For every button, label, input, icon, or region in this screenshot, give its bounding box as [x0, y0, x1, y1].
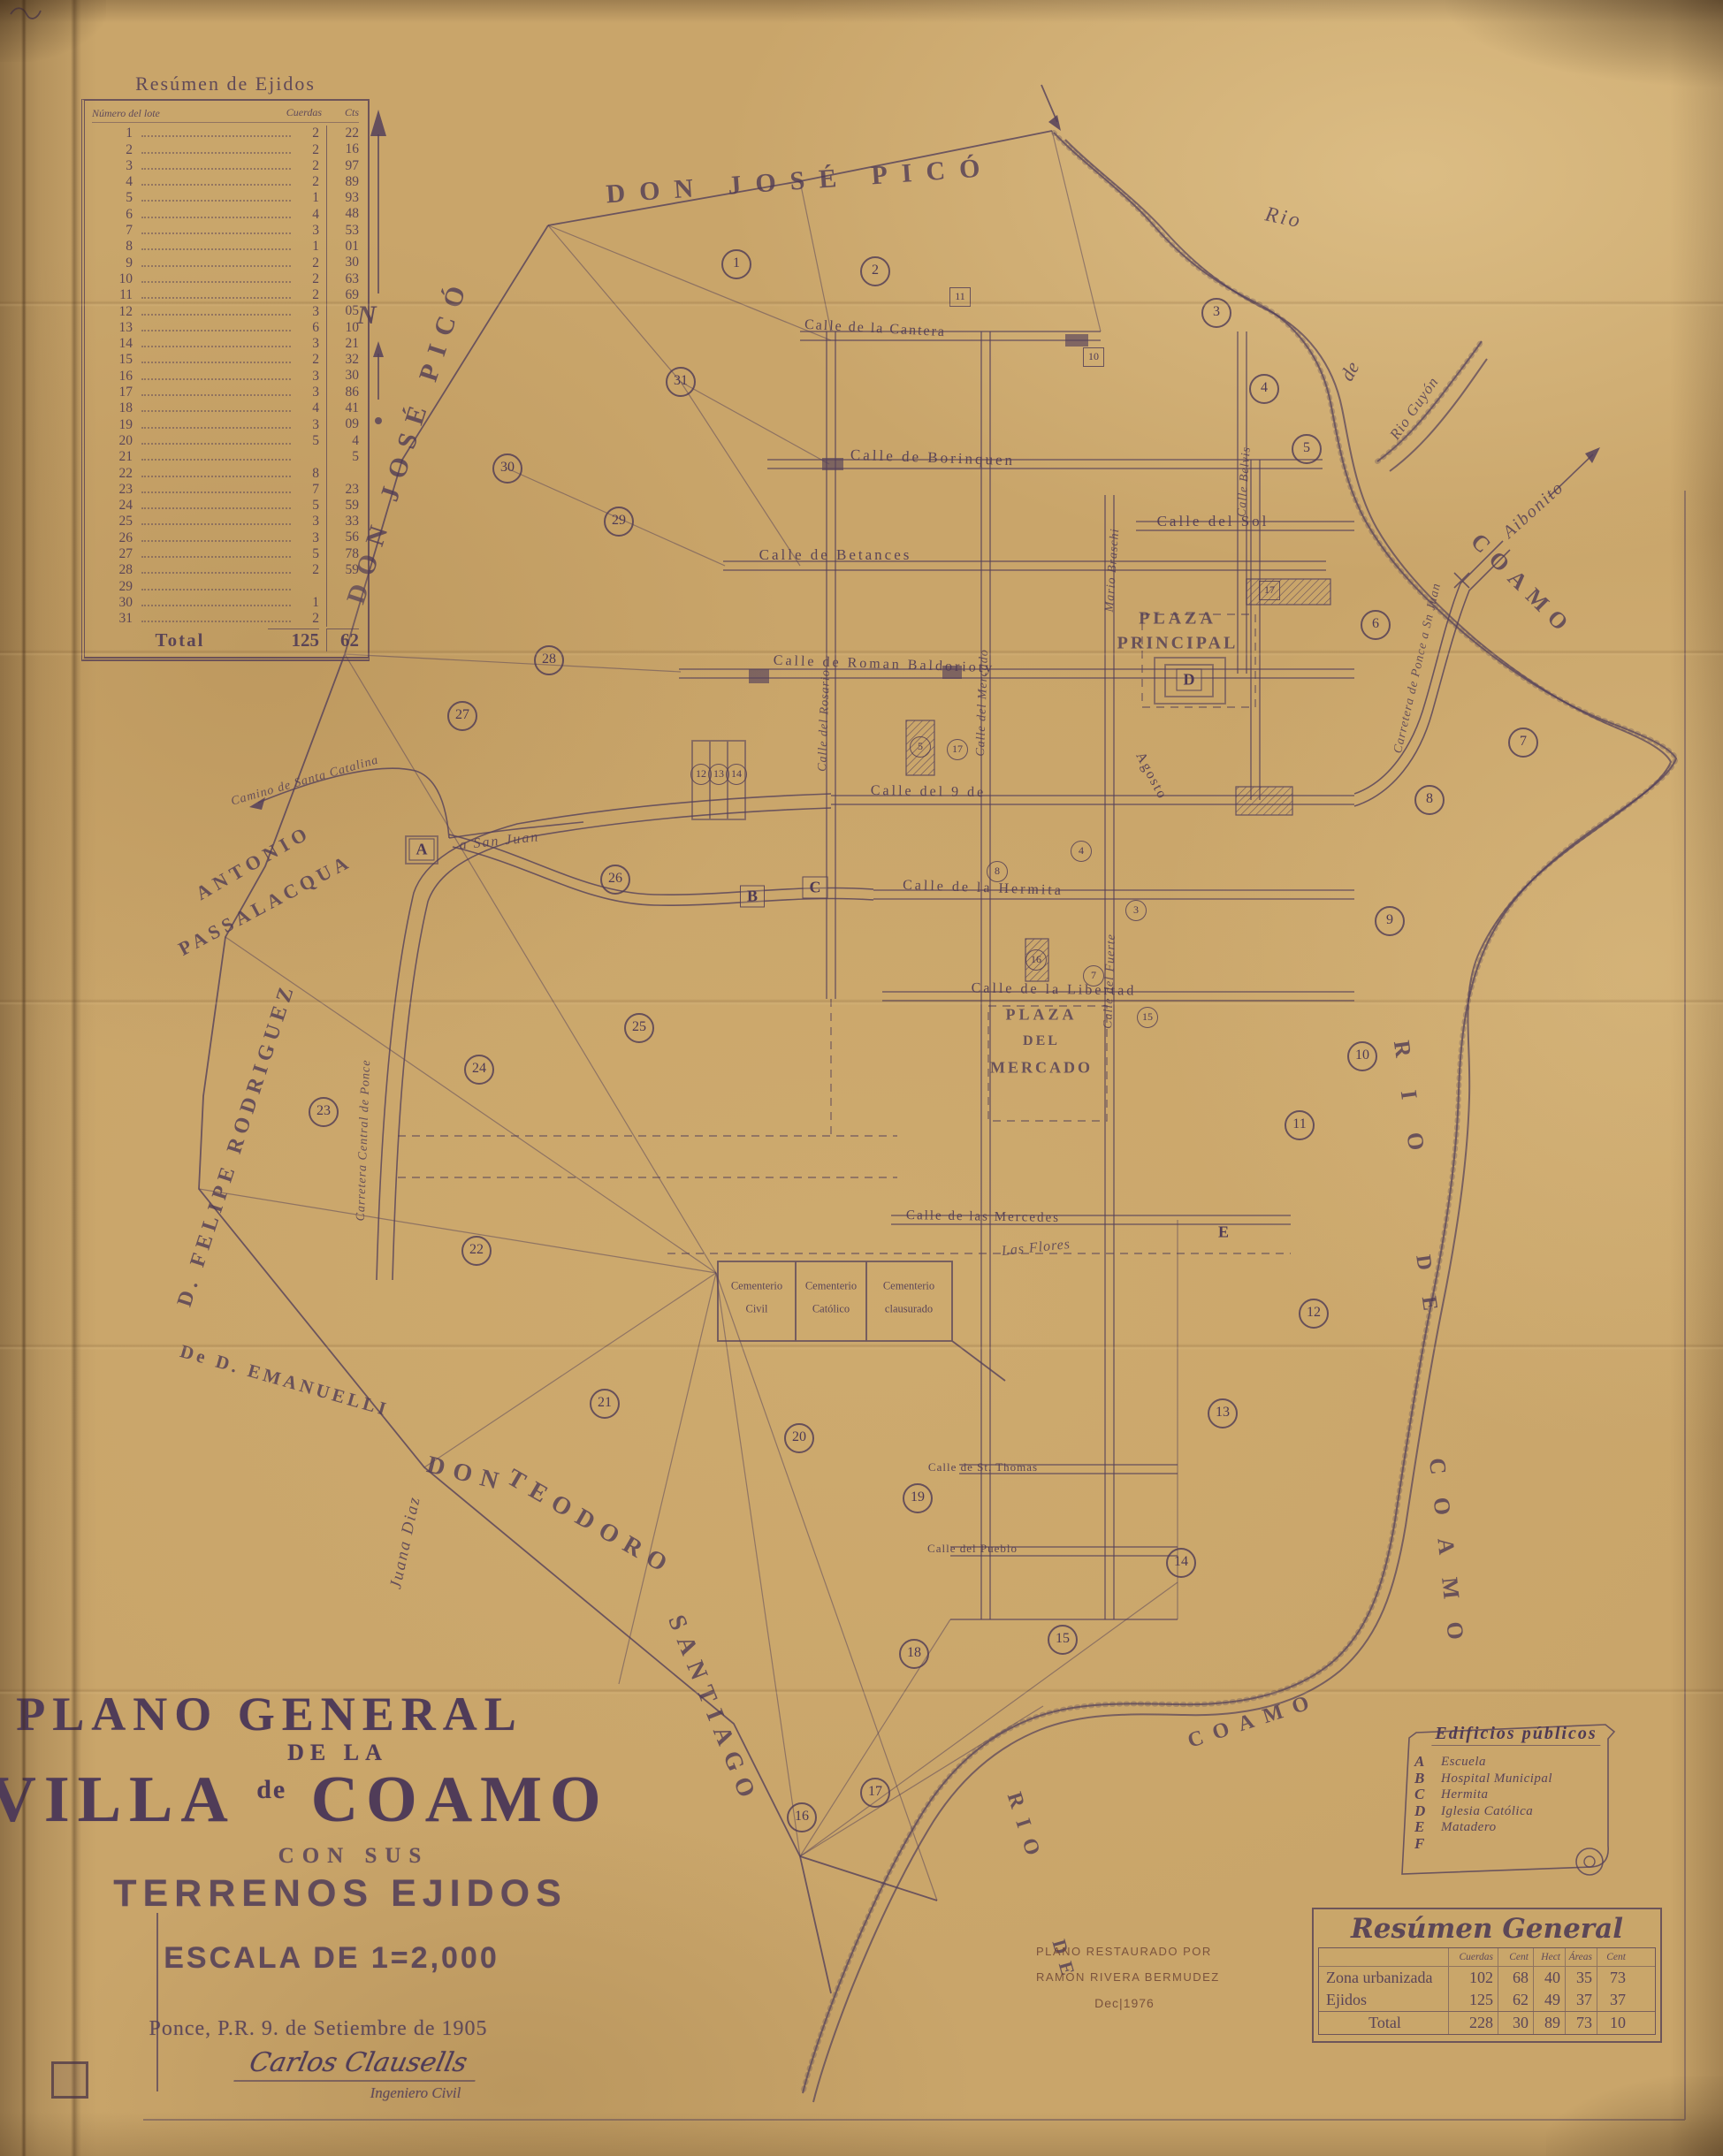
- cts-value: 23: [326, 482, 359, 498]
- cts-value: [326, 465, 359, 481]
- cuerdas-value: 3: [296, 514, 319, 529]
- dotted-leader: [141, 621, 291, 622]
- lot-number-6: 6: [1361, 610, 1391, 640]
- lot-number-7: 7: [1508, 728, 1538, 758]
- legend-name: Escuela: [1441, 1754, 1486, 1771]
- resumen-rows: Zona urbanizada10268403573Ejidos12562493…: [1319, 1967, 1655, 2034]
- fold-crease: [0, 301, 1723, 307]
- dotted-leader: [141, 491, 291, 493]
- dotted-leader: [141, 476, 291, 477]
- ejidos-header-cts: Cts: [322, 106, 359, 119]
- resumen-header-cell: Cent: [1597, 1948, 1630, 1966]
- map-label-calle-betances: Calle de Betances: [759, 546, 912, 564]
- lot-number: 24: [92, 498, 134, 514]
- cts-value: 16: [326, 141, 359, 157]
- cuerdas-value: 2: [296, 142, 319, 158]
- resumen-header: CuerdasCentHectÁreasCent: [1319, 1948, 1655, 1967]
- restoration-line3: Dec|1976: [1036, 1996, 1213, 2010]
- lot-number: 29: [92, 579, 134, 595]
- dotted-leader: [141, 540, 291, 542]
- lot-number-26: 26: [600, 865, 630, 895]
- map-label-plaza-principal-1: PLAZA: [1139, 609, 1216, 629]
- lot-number: 16: [92, 369, 134, 385]
- lot-number: 3: [92, 158, 134, 174]
- dotted-leader: [141, 330, 291, 331]
- ejidos-row: 26356: [92, 529, 359, 545]
- resumen-value: 30: [1498, 2012, 1533, 2034]
- dotted-leader: [141, 362, 291, 363]
- lot-number: 5: [92, 190, 134, 206]
- lot-number-1: 1: [721, 249, 751, 279]
- legend-letter: A: [1414, 1754, 1441, 1771]
- lot-number-18: 18: [899, 1639, 929, 1669]
- lot-number-8: 8: [1414, 785, 1445, 815]
- dotted-leader: [141, 507, 291, 509]
- lot-number-19: 19: [903, 1483, 933, 1513]
- cuerdas-value: 2: [296, 562, 319, 578]
- cts-value: [326, 578, 359, 594]
- lot-number: 10: [92, 271, 134, 287]
- legend-title: Edificios públicos: [1431, 1724, 1600, 1746]
- ejidos-total-label: Total: [92, 629, 268, 651]
- cuerdas-value: 5: [296, 433, 319, 449]
- cuerdas-value: 3: [296, 369, 319, 385]
- legend-item: BHospital Municipal: [1414, 1771, 1552, 1787]
- resumen-row-label: Zona urbanizada: [1319, 1969, 1448, 1987]
- resumen-row-label: Ejidos: [1319, 1991, 1448, 2009]
- lot-number: 1: [92, 126, 134, 141]
- lot-number-17: 17: [947, 739, 968, 760]
- dotted-leader: [141, 232, 291, 234]
- ejidos-row: 5193: [92, 190, 359, 206]
- cuerdas-value: 1: [296, 190, 319, 206]
- resumen-header-spacer: [1319, 1948, 1448, 1966]
- dotted-leader: [141, 297, 291, 299]
- ejidos-row: 17386: [92, 385, 359, 400]
- dotted-leader: [141, 443, 291, 445]
- resumen-value: 49: [1533, 1989, 1565, 2011]
- paper-stain: [1440, 0, 1723, 88]
- title-block: PLANO GENERAL DE LA VILLA de COAMO CON S…: [62, 1671, 610, 2130]
- lot-number-29: 29: [604, 507, 634, 537]
- lot-number-5: 5: [1292, 434, 1322, 464]
- north-arrow: [370, 110, 386, 424]
- ejidos-row: 9230: [92, 255, 359, 270]
- corner-mark: [51, 2061, 88, 2099]
- legend-item: AEscuela: [1414, 1754, 1552, 1771]
- resumen-value: 73: [1597, 1967, 1630, 1989]
- cts-value: 89: [326, 174, 359, 190]
- dotted-leader: [141, 394, 291, 396]
- lot-number-4: 4: [1071, 841, 1092, 862]
- lot-number-5: 5: [910, 736, 931, 758]
- cts-value: 59: [326, 498, 359, 514]
- map-label-cementerio-catolico-2: Católico: [812, 1303, 850, 1316]
- map-title-line5: TERRENOS EJIDOS: [113, 1872, 568, 1916]
- resumen-value: 37: [1597, 1989, 1630, 2011]
- lot-number-24: 24: [464, 1055, 494, 1085]
- resumen-value: 62: [1498, 1989, 1533, 2011]
- ejidos-row: 2054: [92, 433, 359, 449]
- lot-number: 20: [92, 433, 134, 449]
- cts-value: 4: [326, 433, 359, 449]
- resumen-value: 68: [1498, 1967, 1533, 1989]
- cuerdas-value: 3: [296, 530, 319, 546]
- lot-number: 4: [92, 174, 134, 190]
- fold-crease: [0, 1344, 1723, 1350]
- dashed-lines: [398, 614, 1291, 1253]
- resumen-value: 73: [1565, 2012, 1597, 2034]
- lot-number: 27: [92, 546, 134, 562]
- lot-number: 26: [92, 530, 134, 546]
- lot-number-15: 15: [1048, 1625, 1078, 1655]
- map-place-date: Ponce, P.R. 9. de Setiembre de 1905: [149, 2017, 488, 2041]
- legend-item: F: [1414, 1836, 1552, 1853]
- restoration-line1: PLANO RESTAURADO POR: [1036, 1945, 1213, 1958]
- ejidos-row: 215: [92, 449, 359, 465]
- lot-number-17: 17: [860, 1778, 890, 1808]
- cts-value: 93: [326, 190, 359, 206]
- map-sheet: DON JOSÉ PICÓDON JOSÉ PICÓANTONIOPASSALA…: [0, 0, 1723, 2156]
- legend-name: Hospital Municipal: [1441, 1771, 1552, 1787]
- lot-number: 13: [92, 320, 134, 336]
- public-buildings-legend: Edificios públicos AEscuelaBHospital Mun…: [1393, 1713, 1639, 1909]
- title-villa: VILLA: [0, 1764, 233, 1836]
- dotted-leader: [141, 572, 291, 574]
- cts-value: 53: [326, 223, 359, 239]
- title-de: de: [256, 1775, 286, 1804]
- building-letter-D: D: [1177, 669, 1202, 691]
- cuerdas-value: 5: [296, 546, 319, 562]
- legend-name: Hermita: [1441, 1787, 1489, 1803]
- ejidos-rows: 1222221632974289519364487353810192301026…: [92, 126, 359, 627]
- cts-value: 41: [326, 400, 359, 416]
- paper-stain: [0, 0, 106, 62]
- lot-number-17: 17: [1259, 581, 1280, 600]
- map-label-calle-9-de: Calle del 9 de: [871, 783, 987, 801]
- ejidos-row: 19309: [92, 416, 359, 432]
- roads: [258, 454, 1593, 1280]
- lot-number: 31: [92, 611, 134, 627]
- resumen-general: Resúmen General CuerdasCentHectÁreasCent…: [1312, 1908, 1662, 2043]
- lot-number-31: 31: [666, 367, 696, 397]
- dotted-leader: [141, 217, 291, 218]
- lot-number: 6: [92, 207, 134, 223]
- cts-value: 86: [326, 385, 359, 400]
- cts-value: 30: [326, 255, 359, 270]
- building-letter-A: A: [409, 839, 435, 861]
- lot-number-3: 3: [1125, 900, 1147, 921]
- cts-value: 48: [326, 206, 359, 222]
- ejidos-header-lot: Número del lote: [92, 108, 170, 119]
- map-label-cementerio-civil-1: Cementerio: [731, 1280, 782, 1293]
- resumen-value: 35: [1565, 1967, 1597, 1989]
- ejidos-row: 27578: [92, 546, 359, 562]
- legend-letter: B: [1414, 1771, 1441, 1787]
- engineer-signature: Carlos Clausells: [233, 2047, 483, 2082]
- legend-name: Matadero: [1441, 1819, 1497, 1836]
- fold-crease: [0, 999, 1723, 1005]
- restoration-note: PLANO RESTAURADO POR RAMON RIVERA BERMUD…: [1036, 1945, 1213, 2023]
- dotted-leader: [141, 589, 291, 590]
- ejidos-row: 16330: [92, 368, 359, 384]
- map-label-cementerio-clausurado-2: clausurado: [885, 1303, 933, 1316]
- map-label-calle-libertad: Calle de la Libertad: [972, 980, 1137, 999]
- lot-number: 28: [92, 562, 134, 578]
- cts-value: 30: [326, 368, 359, 384]
- map-label-calle-pueblo: Calle del Pueblo: [927, 1542, 1018, 1556]
- resumen-general-title: Resúmen General: [1318, 1913, 1656, 1945]
- ejidos-row: 4289: [92, 174, 359, 190]
- ejidos-row: 23723: [92, 482, 359, 498]
- lot-number: 17: [92, 385, 134, 400]
- ejidos-row: 228: [92, 465, 359, 481]
- lot-number: 18: [92, 400, 134, 416]
- lot-number: 14: [92, 336, 134, 352]
- lot-number-23: 23: [309, 1097, 339, 1127]
- cuerdas-value: 3: [296, 417, 319, 433]
- map-label-plaza-mercado-3: MERCADO: [990, 1059, 1093, 1078]
- lot-number-11: 11: [1285, 1110, 1315, 1140]
- map-label-cementerio-civil-2: Civil: [745, 1303, 767, 1316]
- lot-number: 2: [92, 142, 134, 158]
- cts-value: 09: [326, 416, 359, 432]
- ejidos-row: 301: [92, 595, 359, 611]
- resumen-value: 10: [1597, 2012, 1630, 2034]
- legend-letter: E: [1414, 1819, 1441, 1836]
- cts-value: 10: [326, 320, 359, 336]
- map-scale: ESCALA DE 1=2,000: [164, 1941, 499, 1976]
- cuerdas-value: 3: [296, 385, 319, 400]
- legend-name: Iglesia Católica: [1441, 1803, 1533, 1820]
- dotted-leader: [141, 168, 291, 170]
- ejidos-header: Número del lote Cuerdas Cts: [92, 106, 359, 123]
- legend-letter: F: [1414, 1836, 1441, 1853]
- lot-number-10: 10: [1083, 347, 1104, 367]
- ejidos-row: 15232: [92, 352, 359, 368]
- dotted-leader: [141, 152, 291, 154]
- fold-crease-vertical: [21, 0, 27, 2156]
- dotted-leader: [141, 281, 291, 283]
- ejidos-title: Resúmen de Ejidos: [81, 72, 370, 95]
- resumen-row: Zona urbanizada10268403573: [1319, 1967, 1655, 1989]
- lot-number-10: 10: [1347, 1041, 1377, 1071]
- resumen-row-label: Total: [1319, 2014, 1448, 2032]
- ejidos-row: 13610: [92, 320, 359, 336]
- ejidos-row: 29: [92, 578, 359, 594]
- map-title-line1: PLANO GENERAL: [16, 1687, 523, 1741]
- resumen-header-cell: Áreas: [1565, 1948, 1597, 1966]
- cts-value: 21: [326, 336, 359, 352]
- lot-number-22: 22: [461, 1236, 492, 1266]
- cuerdas-value: 3: [296, 336, 319, 352]
- fold-crease: [0, 650, 1723, 656]
- map-label-calle-mercedes: Calle de las Mercedes: [906, 1208, 1060, 1226]
- building-letter-E: E: [1218, 1223, 1229, 1242]
- lot-number-2: 2: [860, 256, 890, 286]
- cts-value: 22: [326, 126, 359, 141]
- cuerdas-value: 3: [296, 223, 319, 239]
- lot-number-15: 15: [1137, 1007, 1158, 1028]
- cts-value: 59: [326, 562, 359, 578]
- cts-value: 33: [326, 514, 359, 529]
- ejidos-row: 8101: [92, 239, 359, 255]
- lot-number-25: 25: [624, 1013, 654, 1043]
- lot-number: 9: [92, 255, 134, 271]
- cuerdas-value: 7: [296, 482, 319, 498]
- map-title-line4: CON SUS: [278, 1844, 430, 1869]
- resumen-value: 102: [1448, 1967, 1498, 1989]
- dotted-leader: [141, 135, 291, 137]
- cuerdas-value: 2: [296, 255, 319, 271]
- dotted-leader: [141, 265, 291, 267]
- map-label-cementerio-catolico-1: Cementerio: [805, 1280, 857, 1293]
- cuerdas-value: 6: [296, 320, 319, 336]
- legend-letter: C: [1414, 1787, 1441, 1803]
- cuerdas-value: 2: [296, 126, 319, 141]
- paper-stain: [1546, 2076, 1723, 2156]
- ejidos-row: 7353: [92, 223, 359, 239]
- cuerdas-value: 1: [296, 239, 319, 255]
- dotted-leader: [141, 248, 291, 250]
- restoration-line2: RAMON RIVERA BERMUDEZ: [1036, 1970, 1213, 1984]
- cuerdas-value: 2: [296, 174, 319, 190]
- legend-item: DIglesia Católica: [1414, 1803, 1552, 1820]
- engineer-title: Ingeniero Civil: [370, 2084, 461, 2102]
- ejidos-row: 14321: [92, 336, 359, 352]
- lot-number-27: 27: [447, 701, 477, 731]
- resumen-header-cell: Cuerdas: [1448, 1948, 1498, 1966]
- map-label-calle-st-thomas: Calle de St. Thomas: [928, 1460, 1038, 1474]
- dotted-leader: [141, 378, 291, 380]
- cts-value: [326, 595, 359, 611]
- legend-item: CHermita: [1414, 1787, 1552, 1803]
- lot-number-12: 12: [1299, 1299, 1329, 1329]
- ejidos-row: 3297: [92, 158, 359, 174]
- lot-number: 7: [92, 223, 134, 239]
- lot-number: 23: [92, 482, 134, 498]
- lot-number-16: 16: [787, 1802, 817, 1832]
- dotted-leader: [141, 184, 291, 186]
- cuerdas-value: 1: [296, 595, 319, 611]
- cts-value: 63: [326, 271, 359, 287]
- ejidos-row: 28259: [92, 562, 359, 578]
- building-footprints: [749, 334, 1088, 683]
- ejidos-row: 25333: [92, 514, 359, 529]
- ejidos-row: 6448: [92, 206, 359, 222]
- lot-number-14: 14: [726, 764, 747, 785]
- lot-number-13: 13: [1208, 1398, 1238, 1428]
- map-label-plaza-mercado-1: PLAZA: [1005, 1006, 1077, 1025]
- resumen-value: 37: [1565, 1989, 1597, 2011]
- lot-number: 30: [92, 595, 134, 611]
- ejidos-total-cts: 62: [326, 629, 359, 651]
- lot-number-14: 14: [1166, 1548, 1196, 1578]
- cuerdas-value: 5: [296, 498, 319, 514]
- map-label-cementerio-clausurado-1: Cementerio: [883, 1280, 934, 1293]
- river-entry-arrow: [1041, 85, 1061, 131]
- lot-number-21: 21: [590, 1389, 620, 1419]
- lot-number-20: 20: [784, 1423, 814, 1453]
- dotted-leader: [141, 200, 291, 202]
- cuerdas-value: 4: [296, 400, 319, 416]
- lot-number: 15: [92, 352, 134, 368]
- lot-number-4: 4: [1249, 374, 1279, 404]
- cuerdas-value: 2: [296, 611, 319, 627]
- resumen-general-box: CuerdasCentHectÁreasCent Zona urbanizada…: [1318, 1947, 1656, 2035]
- cuerdas-value: 2: [296, 352, 319, 368]
- lot-number-16: 16: [1025, 949, 1047, 971]
- resumen-value: 125: [1448, 1989, 1498, 2011]
- ejidos-row: 312: [92, 611, 359, 627]
- lot-number: 21: [92, 449, 134, 465]
- cts-value: 97: [326, 158, 359, 174]
- dotted-leader: [141, 314, 291, 316]
- cuerdas-value: 8: [296, 466, 319, 482]
- cuerdas-value: 2: [296, 271, 319, 287]
- lot-number-9: 9: [1375, 906, 1405, 936]
- lot-number-30: 30: [492, 453, 522, 484]
- cts-value: [326, 611, 359, 627]
- resumen-row: Ejidos12562493737: [1319, 1989, 1655, 2011]
- ejidos-total-row: Total 125 62: [92, 629, 359, 651]
- ejidos-row: 18441: [92, 400, 359, 416]
- dotted-leader: [141, 605, 291, 606]
- cts-value: 32: [326, 352, 359, 368]
- ejidos-row: 1222: [92, 126, 359, 141]
- cts-value: 78: [326, 546, 359, 562]
- resumen-value: 89: [1533, 2012, 1565, 2034]
- ejidos-total-cuerdas: 125: [268, 629, 319, 651]
- legend-items: AEscuelaBHospital MunicipalCHermitaDIgle…: [1414, 1754, 1552, 1852]
- cts-value: 56: [326, 529, 359, 545]
- cuerdas-value: 2: [296, 158, 319, 174]
- building-letter-B: B: [740, 886, 765, 908]
- resumen-value: 228: [1448, 2012, 1498, 2034]
- ejidos-row: 24559: [92, 498, 359, 514]
- lot-number-7: 7: [1083, 965, 1104, 987]
- lot-number: 19: [92, 417, 134, 433]
- ejidos-row: 10263: [92, 271, 359, 287]
- lot-number: 8: [92, 239, 134, 255]
- legend-item: EMatadero: [1414, 1819, 1552, 1836]
- map-label-calle-sol: Calle del Sol: [1157, 513, 1269, 530]
- fold-crease: [0, 1688, 1723, 1695]
- dotted-leader: [141, 427, 291, 429]
- title-coamo: COAMO: [311, 1764, 609, 1836]
- cuerdas-value: 4: [296, 207, 319, 223]
- resumen-value: 40: [1533, 1967, 1565, 1989]
- resumen-header-cell: Hect: [1533, 1948, 1565, 1966]
- dotted-leader: [141, 459, 291, 461]
- dotted-leader: [141, 346, 291, 347]
- map-label-plaza-mercado-2: DEL: [1023, 1033, 1060, 1049]
- map-title-line3: VILLA de COAMO: [0, 1763, 609, 1838]
- resumen-row: Total22830897310: [1319, 2011, 1655, 2034]
- lot-number-8: 8: [987, 861, 1008, 882]
- fold-crease-vertical: [71, 0, 81, 2156]
- building-letter-C: C: [803, 877, 828, 899]
- cts-value: 5: [326, 449, 359, 465]
- ejidos-box: Número del lote Cuerdas Cts 122222163297…: [81, 99, 370, 661]
- lot-number: 22: [92, 466, 134, 482]
- cts-value: 01: [326, 239, 359, 255]
- resumen-header-cell: Cent: [1498, 1948, 1533, 1966]
- lot-number: 25: [92, 514, 134, 529]
- dotted-leader: [141, 523, 291, 525]
- ejidos-row: 2216: [92, 141, 359, 157]
- dotted-leader: [141, 410, 291, 412]
